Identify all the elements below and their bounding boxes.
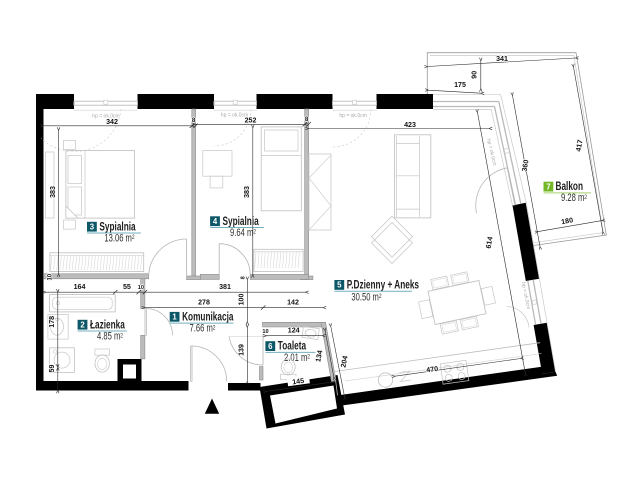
svg-text:383: 383 [49,186,57,198]
svg-text:7: 7 [546,182,550,191]
svg-text:423: 423 [404,121,416,129]
svg-text:383: 383 [243,186,251,198]
svg-text:10: 10 [48,273,54,280]
svg-text:178: 178 [48,316,56,328]
svg-text:3: 3 [90,223,95,232]
svg-text:10: 10 [138,285,144,291]
svg-text:hp = ok.0cm: hp = ok.0cm [92,113,119,119]
svg-text:278: 278 [198,298,210,306]
svg-text:175: 175 [454,81,466,89]
svg-text:470: 470 [426,365,439,375]
svg-text:1: 1 [172,313,177,322]
svg-text:145: 145 [292,377,305,387]
svg-text:139: 139 [238,344,246,356]
svg-text:59: 59 [48,365,56,373]
svg-text:30.50 m2: 30.50 m2 [351,291,381,302]
svg-text:124: 124 [288,327,300,335]
svg-text:10: 10 [262,329,268,335]
svg-text:9.64 m2: 9.64 m2 [230,227,256,238]
svg-text:hp = ok.0cm: hp = ok.0cm [339,113,366,119]
svg-text:164: 164 [74,283,86,291]
svg-text:hp = ok.0cm: hp = ok.0cm [221,113,248,119]
svg-text:8: 8 [241,276,247,279]
svg-text:341: 341 [496,55,508,63]
svg-text:13.06 m2: 13.06 m2 [104,232,134,243]
svg-text:7.66 m2: 7.66 m2 [189,323,215,334]
svg-text:381: 381 [219,283,231,291]
svg-text:142: 142 [287,298,299,306]
svg-text:55: 55 [123,283,131,291]
svg-text:2.01 m2: 2.01 m2 [284,352,310,363]
svg-text:342: 342 [106,118,118,126]
svg-text:100: 100 [238,294,246,306]
svg-text:2: 2 [80,321,85,330]
svg-text:6: 6 [268,342,273,351]
svg-text:9.28 m2: 9.28 m2 [561,192,587,203]
svg-text:4: 4 [213,217,218,226]
svg-text:4.85 m2: 4.85 m2 [97,331,123,342]
svg-text:90: 90 [471,71,479,79]
svg-text:5: 5 [337,281,342,290]
svg-text:P.Dzienny + Aneks: P.Dzienny + Aneks [347,279,419,292]
